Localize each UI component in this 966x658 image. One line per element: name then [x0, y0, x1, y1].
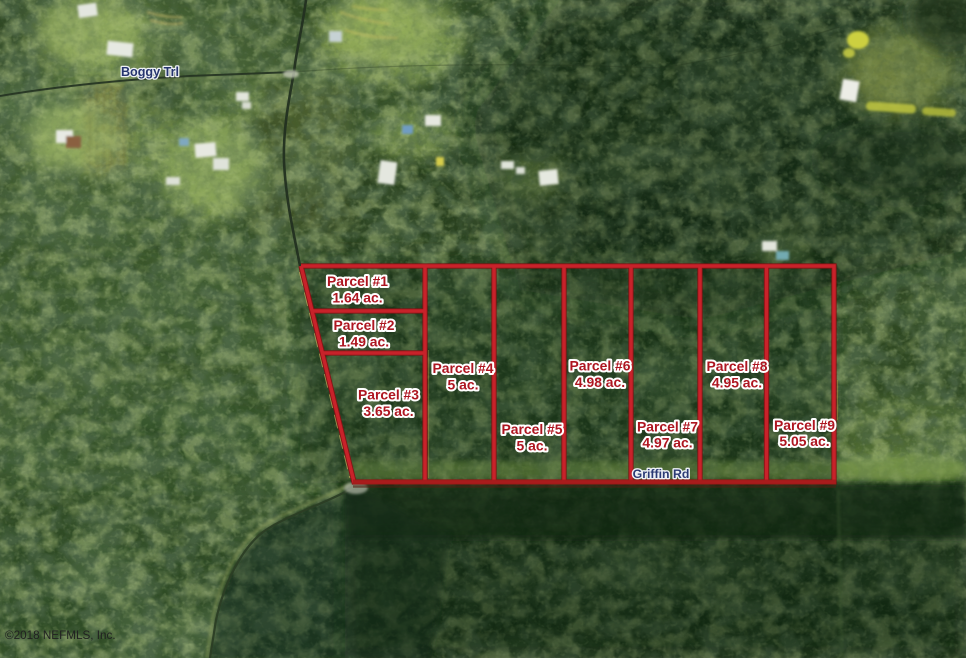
svg-text:Parcel #6: Parcel #6 — [569, 358, 630, 374]
svg-text:5 ac.: 5 ac. — [517, 438, 548, 454]
svg-text:1.49 ac.: 1.49 ac. — [339, 334, 389, 350]
svg-text:4.98 ac.: 4.98 ac. — [575, 374, 625, 390]
svg-text:Parcel #2: Parcel #2 — [333, 317, 394, 333]
svg-text:4.95 ac.: 4.95 ac. — [712, 375, 762, 391]
svg-text:Parcel #4: Parcel #4 — [432, 360, 493, 376]
svg-text:Boggy Trl: Boggy Trl — [121, 65, 179, 79]
svg-text:Parcel #1: Parcel #1 — [327, 273, 388, 289]
svg-text:4.97 ac.: 4.97 ac. — [642, 435, 692, 451]
svg-text:Parcel #5: Parcel #5 — [501, 421, 562, 437]
svg-text:5 ac.: 5 ac. — [448, 377, 479, 393]
svg-text:Parcel #9: Parcel #9 — [774, 417, 835, 433]
svg-text:Parcel #7: Parcel #7 — [637, 419, 698, 435]
svg-text:Parcel #3: Parcel #3 — [358, 387, 419, 403]
svg-text:Griffin Rd: Griffin Rd — [633, 467, 690, 481]
svg-text:5.05 ac.: 5.05 ac. — [779, 433, 829, 449]
svg-text:Parcel #8: Parcel #8 — [706, 358, 767, 374]
svg-text:1.64 ac.: 1.64 ac. — [332, 290, 382, 306]
svg-text:©2018 NEFMLS, Inc.: ©2018 NEFMLS, Inc. — [5, 629, 116, 642]
svg-text:3.65 ac.: 3.65 ac. — [363, 403, 413, 419]
